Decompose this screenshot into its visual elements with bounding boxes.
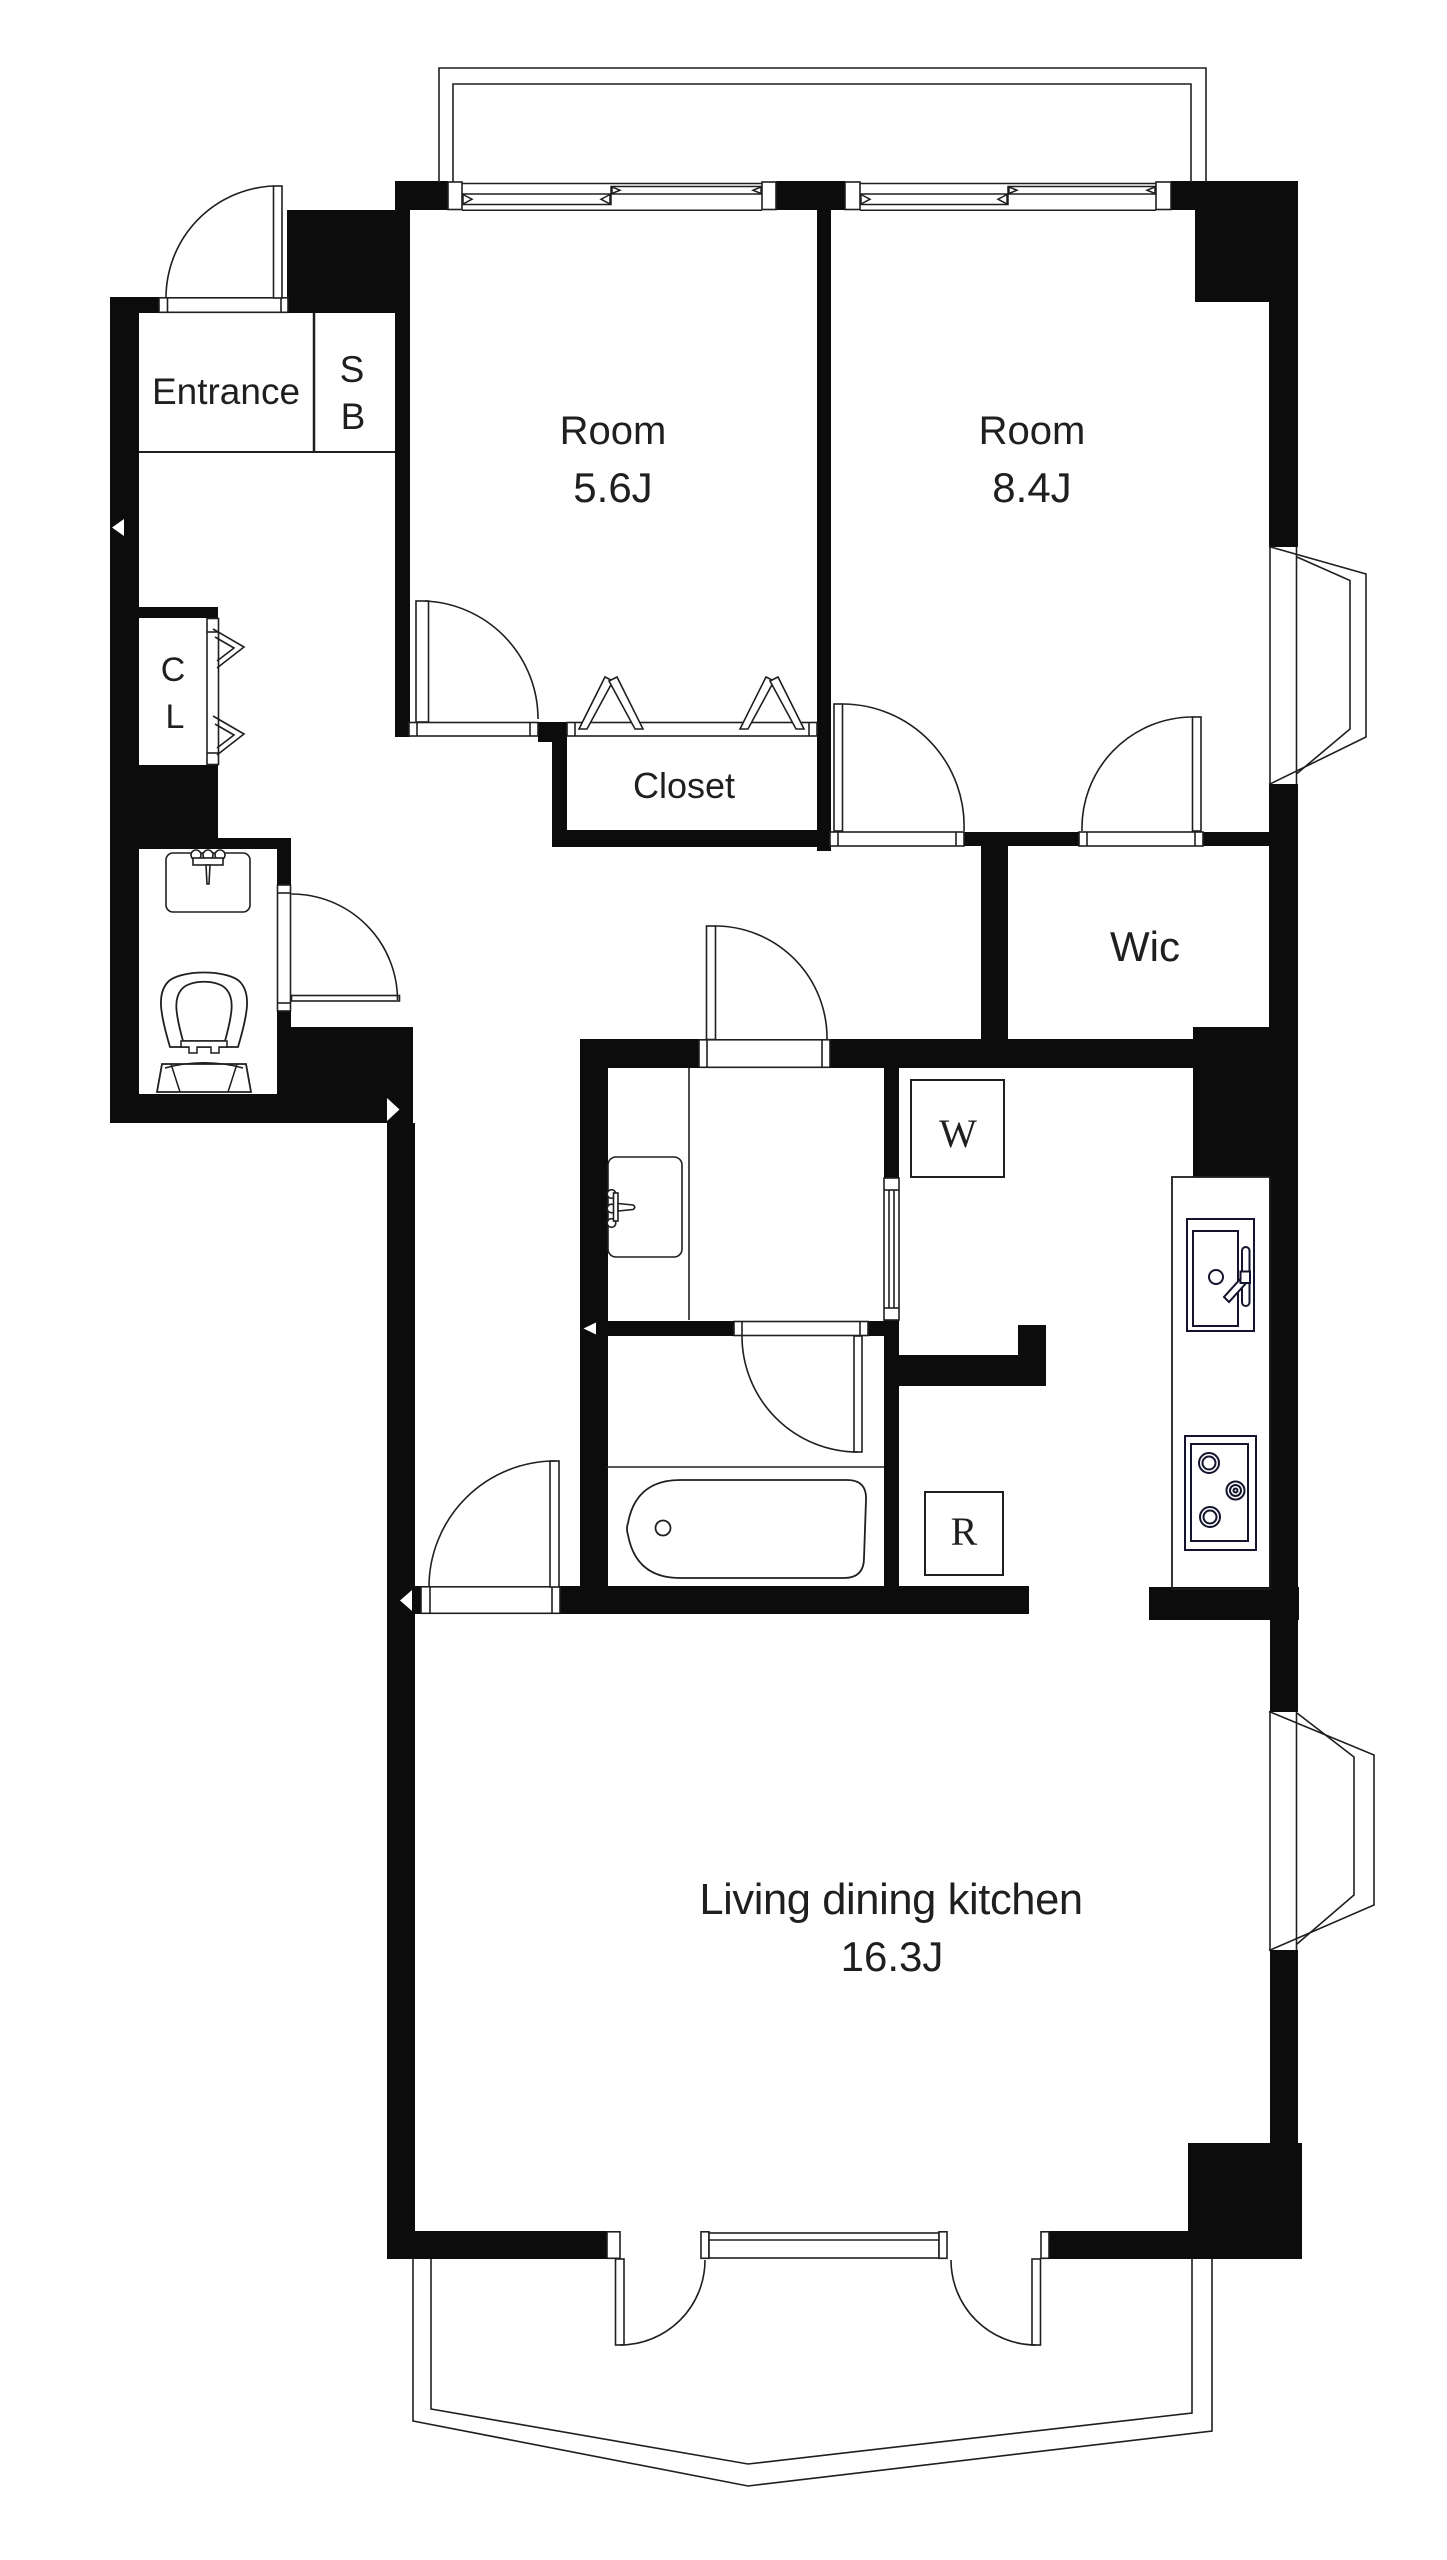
svg-text:R: R <box>951 1509 978 1554</box>
svg-text:Entrance: Entrance <box>152 371 300 412</box>
svg-text:L: L <box>166 698 185 736</box>
svg-text:Room: Room <box>560 409 667 453</box>
svg-text:Wic: Wic <box>1110 923 1180 970</box>
svg-text:C: C <box>161 651 186 689</box>
svg-text:Room: Room <box>979 409 1086 453</box>
svg-text:8.4J: 8.4J <box>992 464 1071 511</box>
svg-text:Closet: Closet <box>633 765 735 806</box>
svg-text:16.3J: 16.3J <box>841 1933 944 1980</box>
svg-text:S: S <box>340 349 365 390</box>
svg-text:5.6J: 5.6J <box>573 464 652 511</box>
svg-text:B: B <box>341 396 366 437</box>
svg-text:W: W <box>939 1111 977 1156</box>
svg-text:Living dining kitchen: Living dining kitchen <box>699 1876 1082 1924</box>
